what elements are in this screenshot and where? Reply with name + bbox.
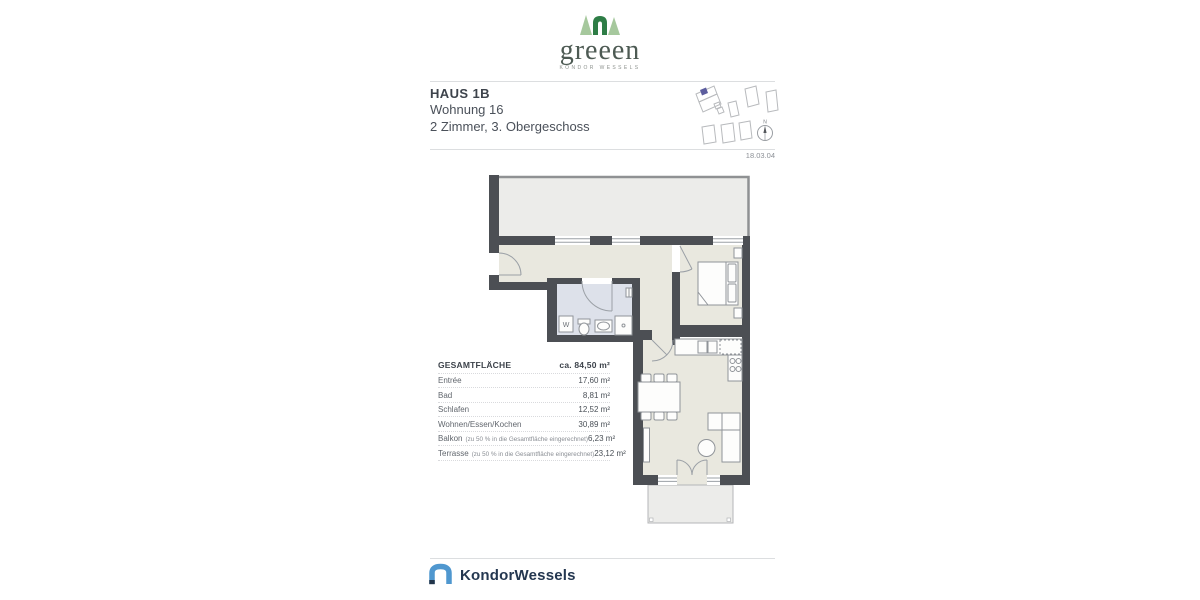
plan-date: 18.03.04 bbox=[430, 151, 775, 160]
site-building bbox=[745, 86, 759, 107]
balcony-threshold bbox=[677, 475, 707, 485]
floorplan-sheet: greeen KONDOR WESSELS HAUS 1B Wohnung 16… bbox=[0, 0, 1200, 600]
total-area-label: GESAMTFLÄCHE bbox=[438, 360, 511, 370]
stove bbox=[728, 355, 742, 381]
table-row: Bad 8,81 m² bbox=[438, 388, 610, 403]
area-table: GESAMTFLÄCHE ca. 84,50 m² Entrée 17,60 m… bbox=[438, 358, 610, 461]
tv-board bbox=[644, 428, 650, 462]
greeen-trees-icon bbox=[578, 13, 622, 35]
area-table-header: GESAMTFLÄCHE ca. 84,50 m² bbox=[438, 358, 610, 374]
right-tree-icon bbox=[608, 17, 620, 35]
total-area-value: ca. 84,50 m² bbox=[559, 360, 610, 370]
header-block: HAUS 1B Wohnung 16 2 Zimmer, 3. Obergesc… bbox=[430, 86, 590, 135]
room-area: 17,60 m² bbox=[578, 376, 610, 385]
terrace-floor bbox=[499, 178, 748, 236]
compass-icon: N bbox=[758, 120, 773, 141]
sink bbox=[595, 320, 612, 332]
nightstand bbox=[734, 308, 742, 318]
area-note: (zu 50 % in die Gesamtfläche eingerechne… bbox=[472, 451, 595, 458]
north-label: N bbox=[763, 120, 767, 126]
site-plan: N bbox=[690, 82, 780, 147]
area-note: (zu 50 % in die Gesamtfläche eingerechne… bbox=[465, 436, 588, 443]
bath-opening bbox=[582, 278, 612, 284]
kitchen-counter bbox=[675, 339, 742, 355]
site-building bbox=[717, 107, 724, 114]
brand-tagline: KONDOR WESSELS bbox=[0, 65, 1200, 71]
dining-table bbox=[638, 374, 680, 420]
shower bbox=[615, 316, 632, 335]
kondorwessels-logo: KondorWessels bbox=[428, 562, 576, 588]
site-building bbox=[696, 86, 717, 102]
site-building bbox=[728, 101, 739, 117]
table-row: Balkon(zu 50 % in die Gesamtfläche einge… bbox=[438, 432, 610, 447]
room-label: Wohnen/Essen/Kochen bbox=[438, 420, 521, 429]
table-row: Schlafen 12,52 m² bbox=[438, 403, 610, 418]
table-row: Wohnen/Essen/Kochen 30,89 m² bbox=[438, 417, 610, 432]
divider-header bbox=[430, 149, 775, 150]
room-area: 6,23 m² bbox=[588, 434, 615, 443]
toilet bbox=[578, 319, 590, 335]
balcony-floor bbox=[648, 485, 733, 523]
site-building bbox=[739, 121, 752, 140]
divider-footer bbox=[430, 558, 775, 559]
coffee-table bbox=[698, 440, 715, 457]
greeen-logo: greeen KONDOR WESSELS bbox=[0, 13, 1200, 71]
floor-plan: W bbox=[486, 174, 782, 534]
nightstand bbox=[734, 248, 742, 258]
room-label: Schlafen bbox=[438, 405, 469, 414]
bed bbox=[698, 262, 738, 305]
kondorwessels-arch-icon bbox=[428, 562, 453, 588]
site-building bbox=[766, 90, 778, 112]
table-row: Entrée 17,60 m² bbox=[438, 374, 610, 389]
room-label: Entrée bbox=[438, 376, 462, 385]
room-area: 8,81 m² bbox=[583, 391, 610, 400]
unit-subtitle: Wohnung 16 bbox=[430, 102, 590, 119]
table-row: Terrasse(zu 50 % in die Gesamtfläche ein… bbox=[438, 446, 610, 461]
room-area: 12,52 m² bbox=[578, 405, 610, 414]
towel-radiator bbox=[626, 288, 632, 297]
arch-icon bbox=[593, 16, 607, 35]
unit-detail: 2 Zimmer, 3. Obergeschoss bbox=[430, 119, 590, 136]
balcony-post bbox=[727, 518, 731, 522]
site-building bbox=[721, 123, 735, 143]
brand-wordmark: greeen bbox=[0, 38, 1200, 64]
site-building bbox=[702, 125, 716, 144]
room-area: 23,12 m² bbox=[594, 449, 626, 458]
room-label: Terrasse(zu 50 % in die Gesamtfläche ein… bbox=[438, 449, 594, 458]
room-label: Bad bbox=[438, 391, 452, 400]
entrance-opening bbox=[489, 253, 499, 275]
page-title: HAUS 1B bbox=[430, 86, 590, 102]
washer-label: W bbox=[563, 322, 570, 329]
room-label: Balkon(zu 50 % in die Gesamtfläche einge… bbox=[438, 434, 588, 443]
left-tree-icon bbox=[580, 15, 592, 35]
room-area: 30,89 m² bbox=[578, 420, 610, 429]
footer-wordmark: KondorWessels bbox=[460, 567, 576, 584]
balcony-post bbox=[650, 518, 654, 522]
